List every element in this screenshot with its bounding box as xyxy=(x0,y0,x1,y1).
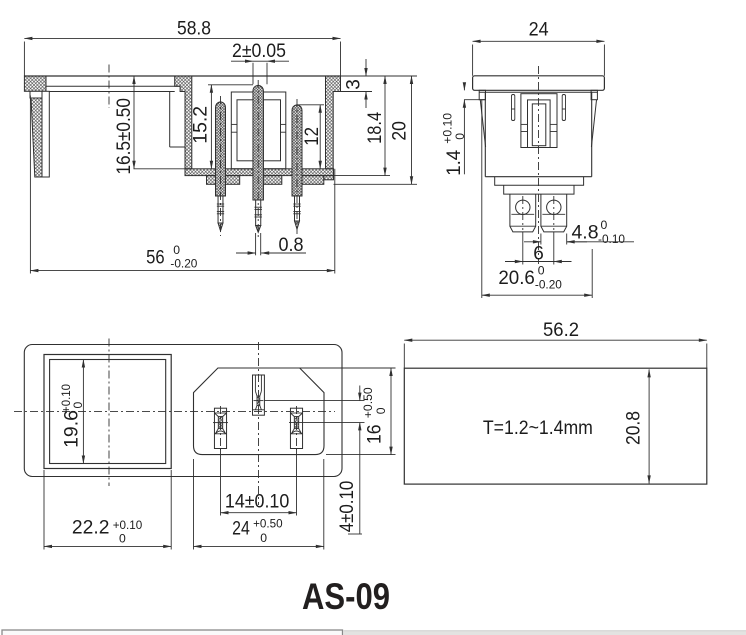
svg-text:15.2: 15.2 xyxy=(191,106,212,144)
svg-text:1.4: 1.4 xyxy=(444,149,465,175)
svg-text:-0.10: -0.10 xyxy=(598,232,625,246)
svg-text:+0.50: +0.50 xyxy=(253,517,283,531)
svg-text:-0.20: -0.20 xyxy=(535,277,562,291)
svg-text:0: 0 xyxy=(260,531,267,545)
svg-text:0: 0 xyxy=(453,133,467,140)
svg-text:0: 0 xyxy=(601,218,608,232)
svg-text:0: 0 xyxy=(173,243,180,257)
svg-text:4.8: 4.8 xyxy=(572,223,599,244)
svg-text:-0.20: -0.20 xyxy=(170,257,197,271)
svg-text:19.6: 19.6 xyxy=(62,410,83,448)
svg-text:56: 56 xyxy=(146,248,165,269)
svg-text:0: 0 xyxy=(119,532,126,546)
svg-text:20: 20 xyxy=(390,121,411,141)
svg-text:AS-09: AS-09 xyxy=(302,576,390,617)
svg-text:56.2: 56.2 xyxy=(543,320,579,341)
svg-text:12: 12 xyxy=(302,127,323,146)
svg-text:0: 0 xyxy=(374,407,388,414)
svg-text:16: 16 xyxy=(365,424,386,444)
svg-text:16.5±0.50: 16.5±0.50 xyxy=(114,98,135,175)
svg-text:T=1.2~1.4mm: T=1.2~1.4mm xyxy=(483,418,593,439)
svg-text:3: 3 xyxy=(344,79,365,90)
svg-text:20.6: 20.6 xyxy=(498,268,535,289)
svg-text:4±0.10: 4±0.10 xyxy=(337,481,358,533)
svg-text:24: 24 xyxy=(232,519,250,540)
svg-text:22.2: 22.2 xyxy=(72,518,110,539)
svg-text:14±0.10: 14±0.10 xyxy=(225,492,289,513)
svg-text:+0.10: +0.10 xyxy=(113,518,143,532)
svg-text:18.4: 18.4 xyxy=(365,112,386,144)
svg-text:20.8: 20.8 xyxy=(624,411,645,445)
svg-text:24: 24 xyxy=(529,20,549,41)
svg-text:0: 0 xyxy=(538,264,545,278)
svg-text:2±0.05: 2±0.05 xyxy=(232,41,286,62)
svg-text:+0.50: +0.50 xyxy=(361,387,375,418)
svg-text:58.8: 58.8 xyxy=(177,18,211,39)
